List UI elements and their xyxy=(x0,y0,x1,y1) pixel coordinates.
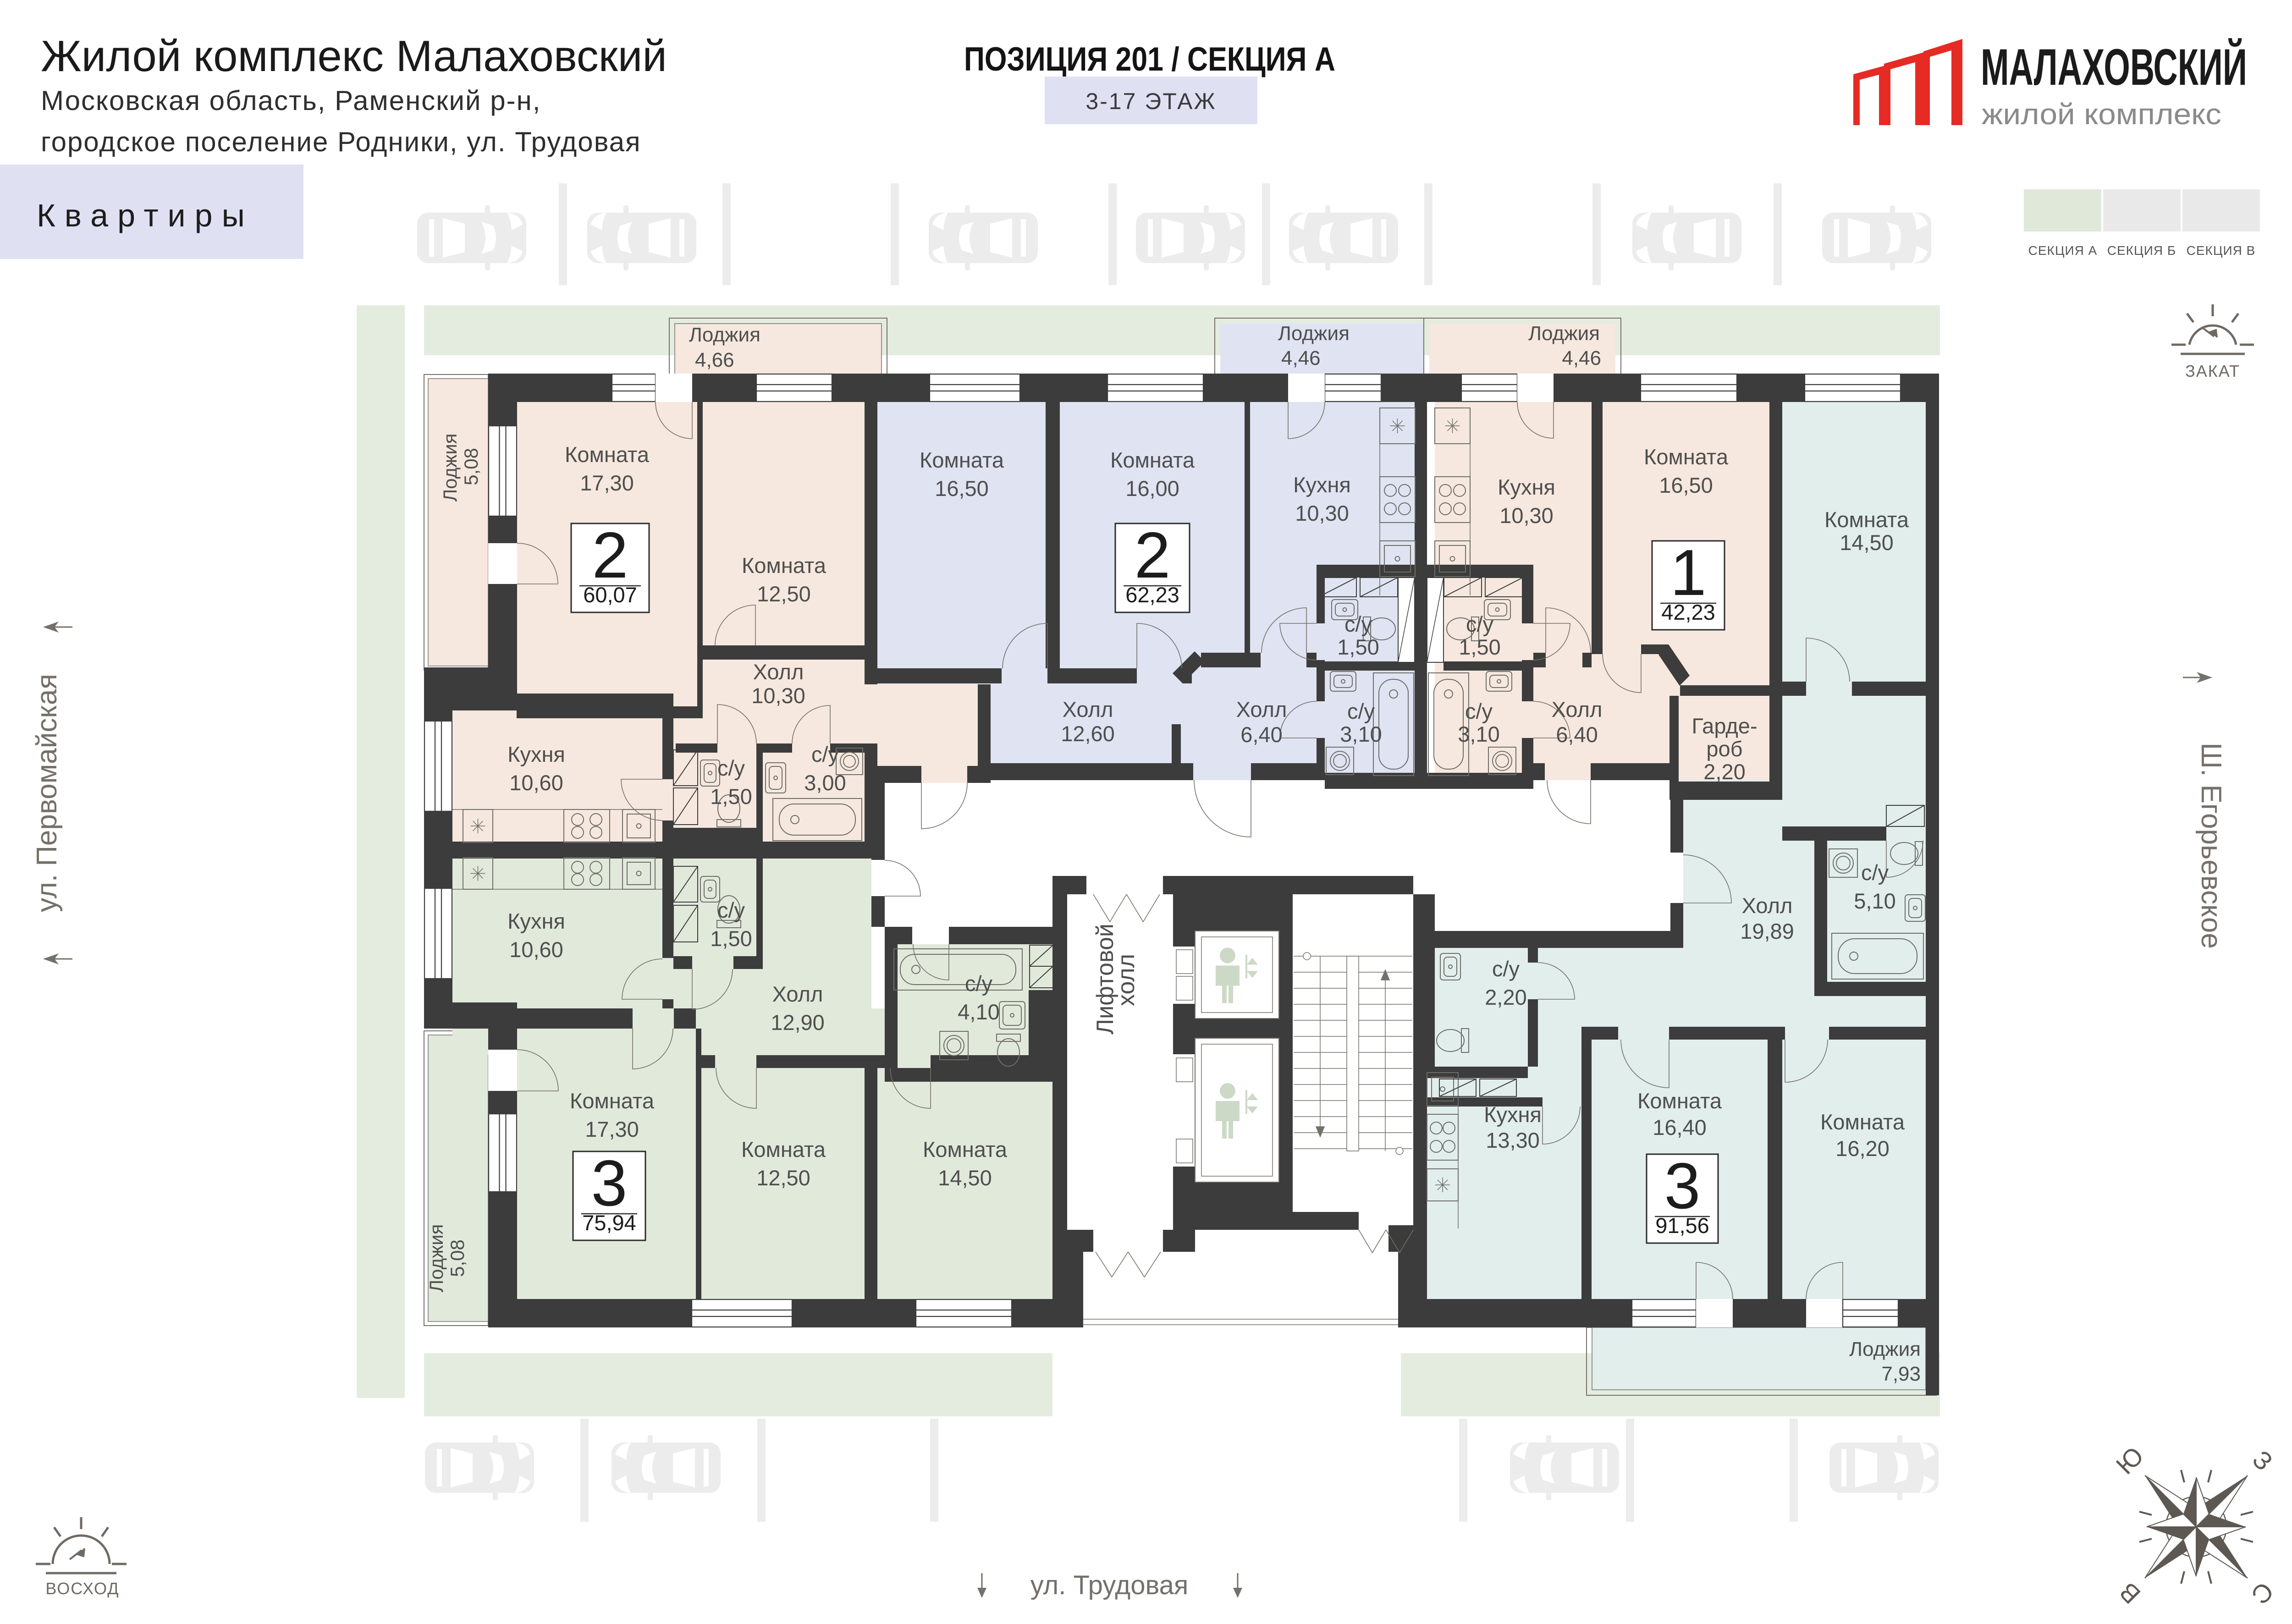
svg-text:ПОЗИЦИЯ 201 / СЕКЦИЯ А: ПОЗИЦИЯ 201 / СЕКЦИЯ А xyxy=(964,41,1335,78)
svg-text:жилой комплекс: жилой комплекс xyxy=(1982,98,2221,131)
svg-text:1: 1 xyxy=(1670,536,1707,609)
svg-text:Жилой комплекс Малаховский: Жилой комплекс Малаховский xyxy=(41,32,667,81)
svg-text:3: 3 xyxy=(591,1147,628,1220)
svg-text:3: 3 xyxy=(1664,1150,1701,1222)
svg-text:Лоджия: Лоджия xyxy=(1849,1338,1921,1360)
svg-text:МАЛАХОВСКИЙ: МАЛАХОВСКИЙ xyxy=(1981,39,2247,96)
svg-text:75,94: 75,94 xyxy=(582,1211,636,1235)
svg-text:42,23: 42,23 xyxy=(1661,600,1715,624)
svg-text:Квартиры: Квартиры xyxy=(37,198,254,233)
svg-text:Холл10,30: Холл10,30 xyxy=(751,660,805,708)
svg-text:4,66: 4,66 xyxy=(695,349,734,371)
svg-text:СЕКЦИЯ Б: СЕКЦИЯ Б xyxy=(2107,243,2176,258)
svg-text:ВОСХОД: ВОСХОД xyxy=(45,1579,119,1598)
svg-text:2: 2 xyxy=(1135,519,1171,592)
svg-text:5,08: 5,08 xyxy=(446,1239,468,1277)
svg-text:Лоджия: Лоджия xyxy=(425,1224,447,1293)
svg-text:ул. Первомайская: ул. Первомайская xyxy=(31,674,63,912)
svg-text:60,07: 60,07 xyxy=(583,583,637,607)
svg-text:2: 2 xyxy=(592,519,628,592)
svg-text:5,08: 5,08 xyxy=(460,448,482,485)
svg-text:СЕКЦИЯ А: СЕКЦИЯ А xyxy=(2028,243,2098,258)
svg-text:Московская область, Раменский: Московская область, Раменский р-н, xyxy=(41,85,541,116)
svg-text:4,46: 4,46 xyxy=(1562,347,1601,369)
svg-text:ЗАКАТ: ЗАКАТ xyxy=(2185,362,2240,380)
svg-text:Лоджия: Лоджия xyxy=(1278,322,1350,345)
svg-text:СЕКЦИЯ В: СЕКЦИЯ В xyxy=(2187,243,2256,258)
svg-text:7,93: 7,93 xyxy=(1881,1363,1921,1385)
svg-text:городское поселение Родники, у: городское поселение Родники, ул. Трудова… xyxy=(41,127,641,157)
svg-text:холл: холл xyxy=(1113,954,1140,1006)
svg-text:62,23: 62,23 xyxy=(1125,583,1179,607)
svg-text:Ш. Егорьевское: Ш. Егорьевское xyxy=(2195,743,2227,949)
svg-text:4,46: 4,46 xyxy=(1281,347,1321,369)
svg-text:91,56: 91,56 xyxy=(1655,1213,1709,1238)
svg-text:ул. Трудовая: ул. Трудовая xyxy=(1030,1570,1189,1600)
svg-text:Лоджия: Лоджия xyxy=(439,434,461,502)
svg-text:Лоджия: Лоджия xyxy=(1528,322,1600,345)
svg-text:Холл12,60: Холл12,60 xyxy=(1061,697,1115,746)
svg-text:3-17 ЭТАЖ: 3-17 ЭТАЖ xyxy=(1085,88,1216,114)
svg-text:Лоджия: Лоджия xyxy=(689,324,760,346)
